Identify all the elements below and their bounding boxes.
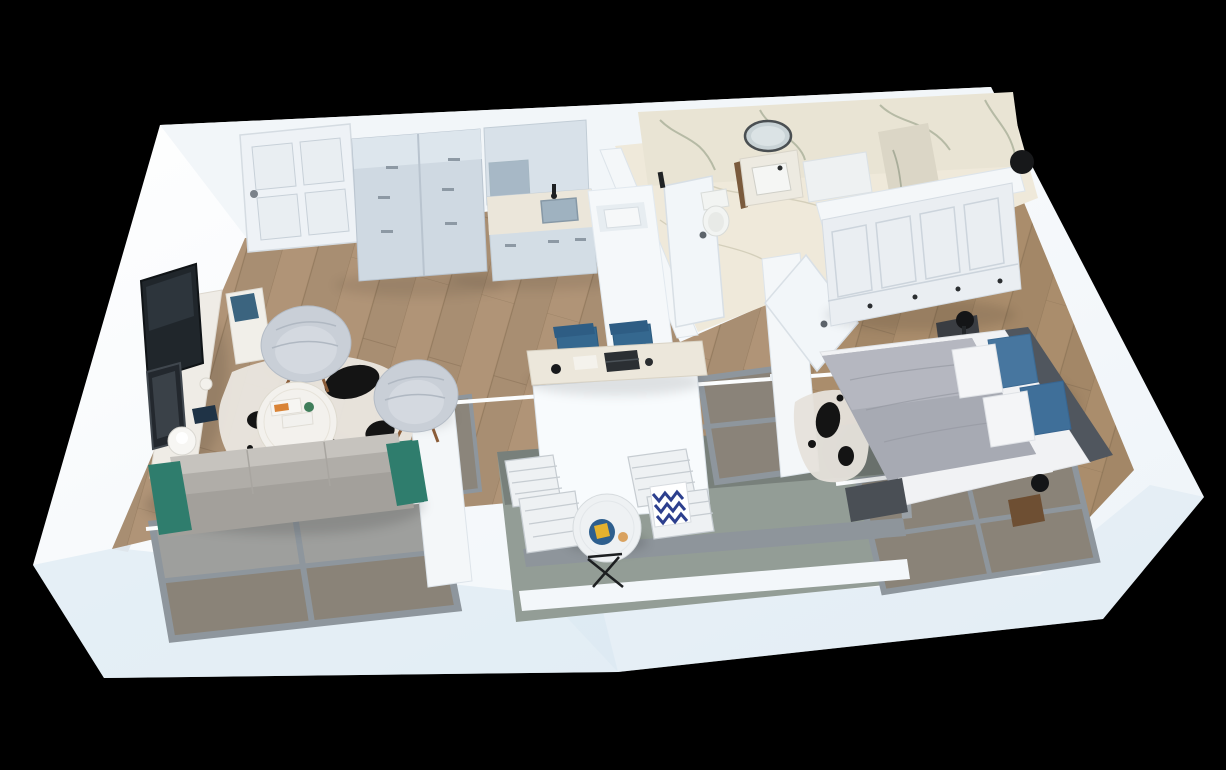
kitchen-faucet-base (551, 193, 557, 199)
table-lamp-glow (176, 432, 188, 444)
bedroom-door-handle (821, 321, 828, 328)
round-mirror-glass (751, 126, 785, 146)
entrance-door-panel (300, 138, 344, 185)
vanity-faucet (778, 166, 783, 171)
vase (200, 378, 212, 390)
peninsula-basin (604, 207, 641, 228)
bathroom-door-handle (700, 232, 707, 239)
entrance-door (240, 124, 358, 252)
bench-blue-cushion (230, 293, 259, 322)
kitchen-sink (541, 198, 578, 223)
mug (551, 364, 561, 374)
vanity-basin (752, 163, 791, 195)
entrance-door-panel (252, 143, 296, 190)
croissant (618, 532, 628, 542)
apartment-render: Isometric 3D render of a one-bedroom apa… (0, 0, 1226, 770)
entrance-door-handle (250, 190, 258, 198)
shower-bin (1010, 150, 1034, 174)
pillow-white (983, 391, 1035, 447)
papers (573, 355, 598, 370)
entrance-door-panel (305, 189, 349, 235)
pillow-white (952, 344, 1003, 398)
mouse (645, 358, 653, 366)
window-side-lamp (1031, 474, 1049, 492)
toilet-seat (708, 212, 724, 232)
floorplan-stage: Isometric 3D render of a one-bedroom apa… (0, 0, 1226, 770)
table-plant (304, 402, 314, 412)
entrance-door-panel (257, 194, 301, 240)
